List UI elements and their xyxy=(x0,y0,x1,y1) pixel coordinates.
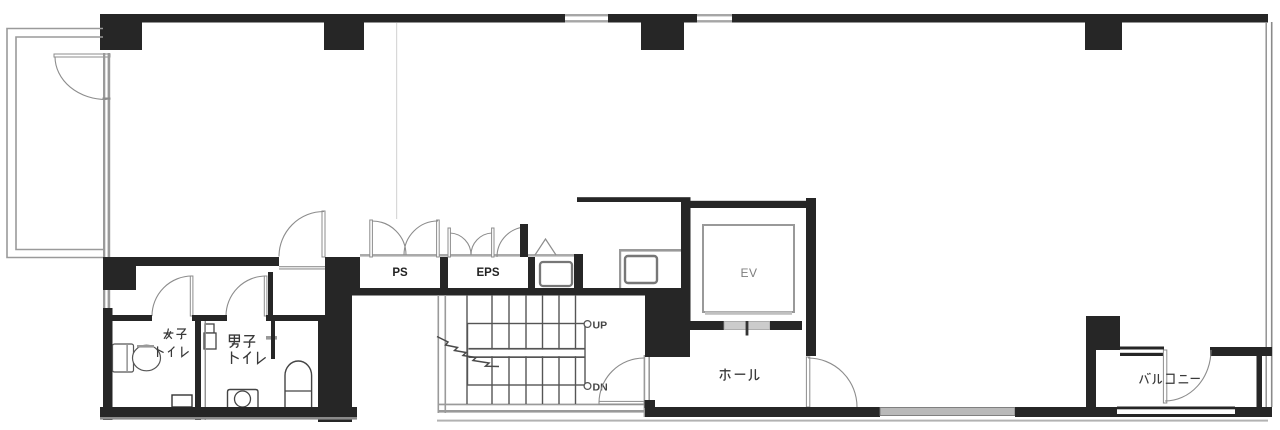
svg-text:EPS: EPS xyxy=(476,267,499,279)
svg-text:EV: EV xyxy=(740,266,757,280)
svg-text:PS: PS xyxy=(392,267,408,279)
svg-text:UP: UP xyxy=(593,320,608,332)
